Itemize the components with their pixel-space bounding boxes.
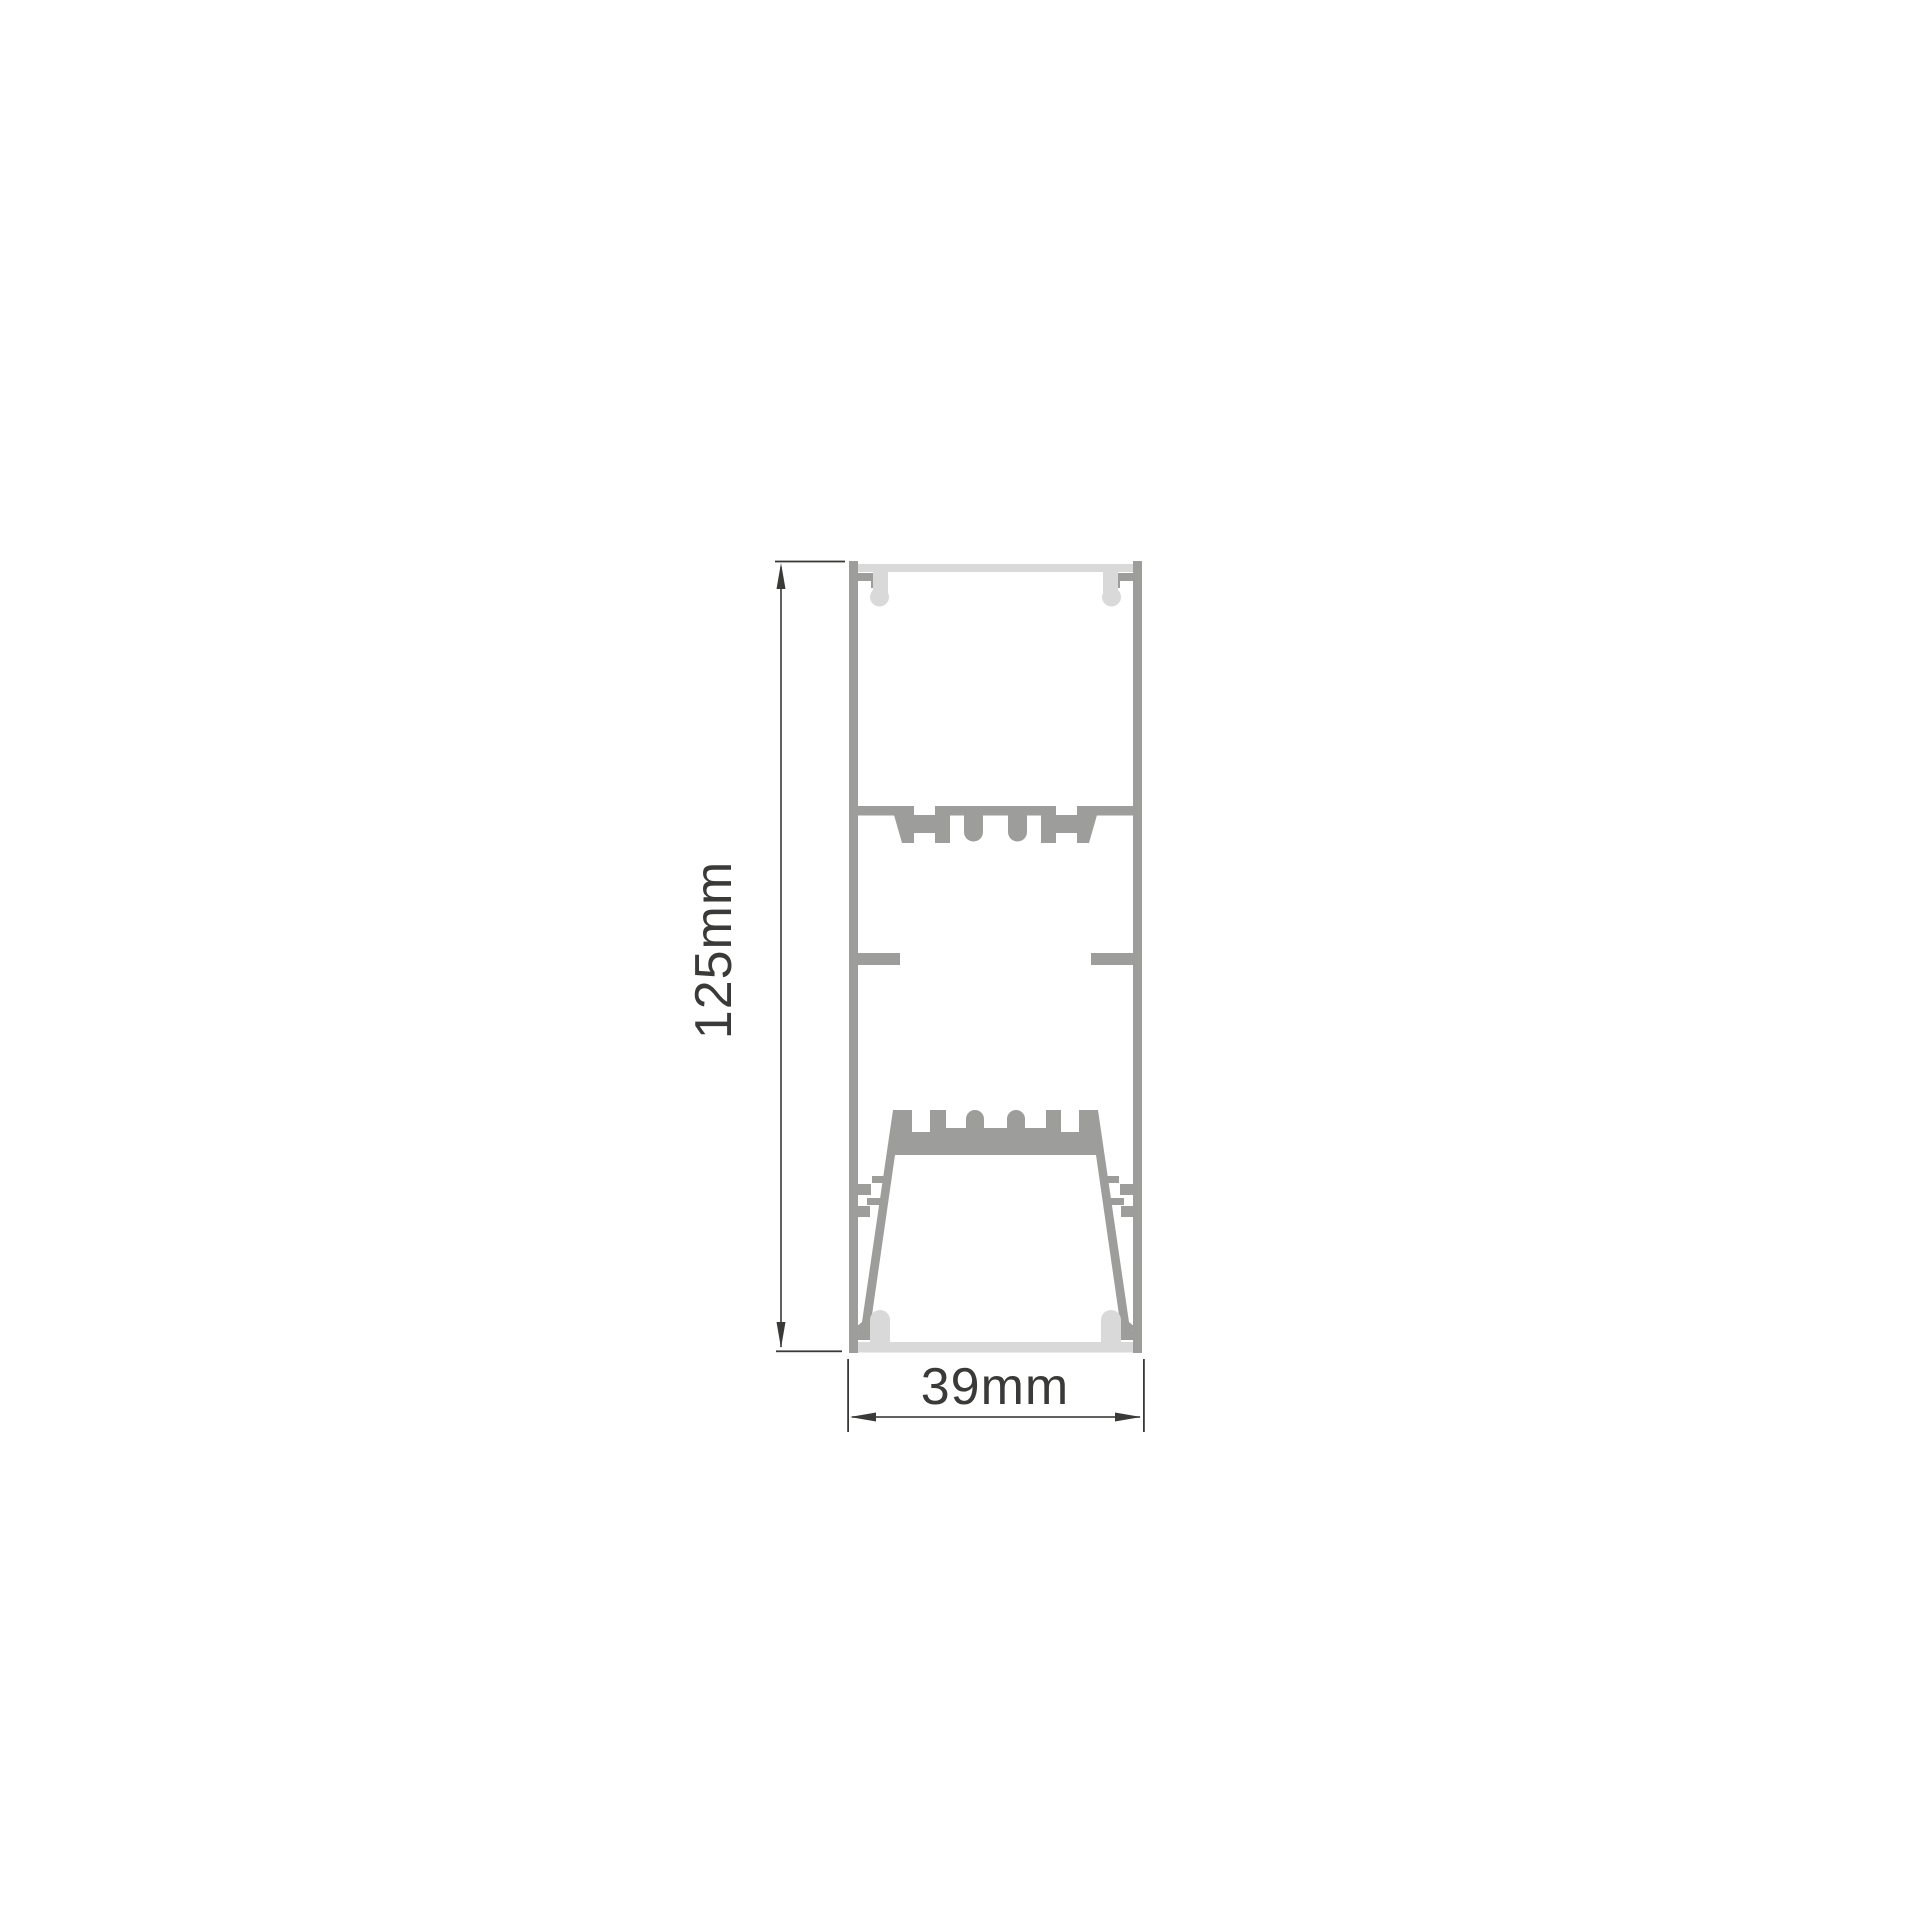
profile-cross-section-drawing: 125mm 39mm [0,0,1920,1920]
mid-tab-left [858,953,900,965]
drawing-canvas: 125mm 39mm [0,0,1920,1920]
tray-fin-upper-right [1101,1176,1119,1183]
wall-tab-lower-right [1121,1206,1133,1217]
top-clip-hook-right [1102,588,1121,607]
lower-tray [856,1110,1135,1340]
shelf-finger-left [964,815,983,842]
shelf-left-leg [894,815,950,843]
dimension-annotations: 125mm 39mm [685,561,1145,1432]
height-extension-line-bottom [776,1350,842,1352]
profile-left-wall [849,561,858,1353]
height-dimension-line [780,567,782,1347]
shelf-bar-left [858,806,914,816]
height-arrow-up [777,563,786,589]
profile-aluminum-parts [849,561,1142,1353]
shelf-right-leg [1041,815,1097,843]
height-dimension-label: 125mm [685,861,743,1039]
top-diffuser [858,564,1133,572]
width-extension-line-left [847,1359,849,1432]
shelf-bar-center [935,806,1056,816]
tray-fin-upper-left [872,1176,890,1183]
mid-tab-right [1091,953,1133,965]
shelf-bar-right [1077,806,1133,816]
width-extension-line-right [1143,1359,1145,1432]
bottom-clip-left [870,1310,890,1342]
bottom-clip-right [1101,1310,1121,1342]
wall-tab-lower-left [858,1206,870,1217]
tray-fin-lower-left [867,1198,885,1205]
tray-fin-lower-right [1106,1198,1124,1205]
top-clip-hook-left [870,588,889,607]
bottom-diffuser [858,1342,1133,1353]
height-extension-line-top [775,561,845,563]
width-arrow-left [850,1413,876,1422]
shelf-finger-right [1008,815,1027,842]
profile-right-wall [1133,561,1142,1353]
width-dimension-line [852,1416,1140,1418]
wall-foot-right [1122,1331,1133,1340]
width-dimension-label: 39mm [921,1358,1069,1416]
width-arrow-right [1115,1413,1141,1422]
wall-tab-upper-left [858,1184,871,1195]
height-arrow-down [777,1322,786,1348]
wall-foot-left [858,1331,869,1340]
wall-tab-upper-right [1120,1184,1133,1195]
